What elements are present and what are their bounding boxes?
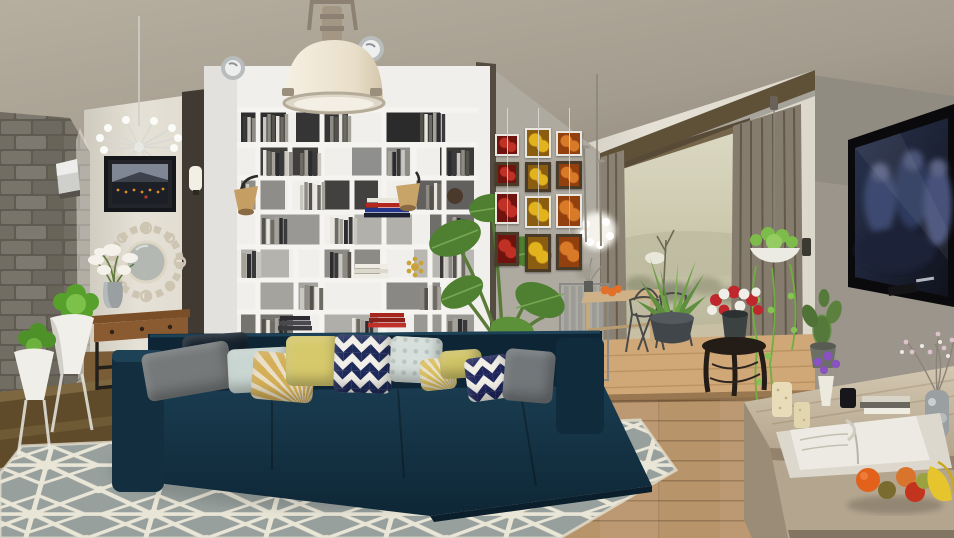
sofa [112, 331, 652, 522]
agave-plant [636, 258, 706, 344]
sofa-left-arm [112, 350, 164, 492]
white-planter-tall [50, 284, 99, 432]
tv [848, 104, 954, 307]
interior-render [0, 0, 954, 538]
sofa-right-back [556, 338, 604, 434]
sputnik-chandelier [96, 16, 182, 180]
flower-stool [702, 286, 766, 396]
city-picture [106, 158, 174, 210]
black-cup [840, 388, 856, 408]
cactus [799, 289, 845, 368]
wall-spotlight-left [221, 56, 245, 80]
pendant-lamp [282, 0, 384, 113]
white-planter-short [14, 323, 56, 456]
sphere-decor [447, 188, 463, 204]
pillar-sconce [189, 166, 202, 195]
book-stack [860, 396, 910, 414]
stone-wall-sconce [56, 159, 80, 199]
wall-switch [802, 238, 811, 256]
bookshelf-side-panel [204, 66, 237, 350]
scene-furniture [0, 0, 954, 538]
